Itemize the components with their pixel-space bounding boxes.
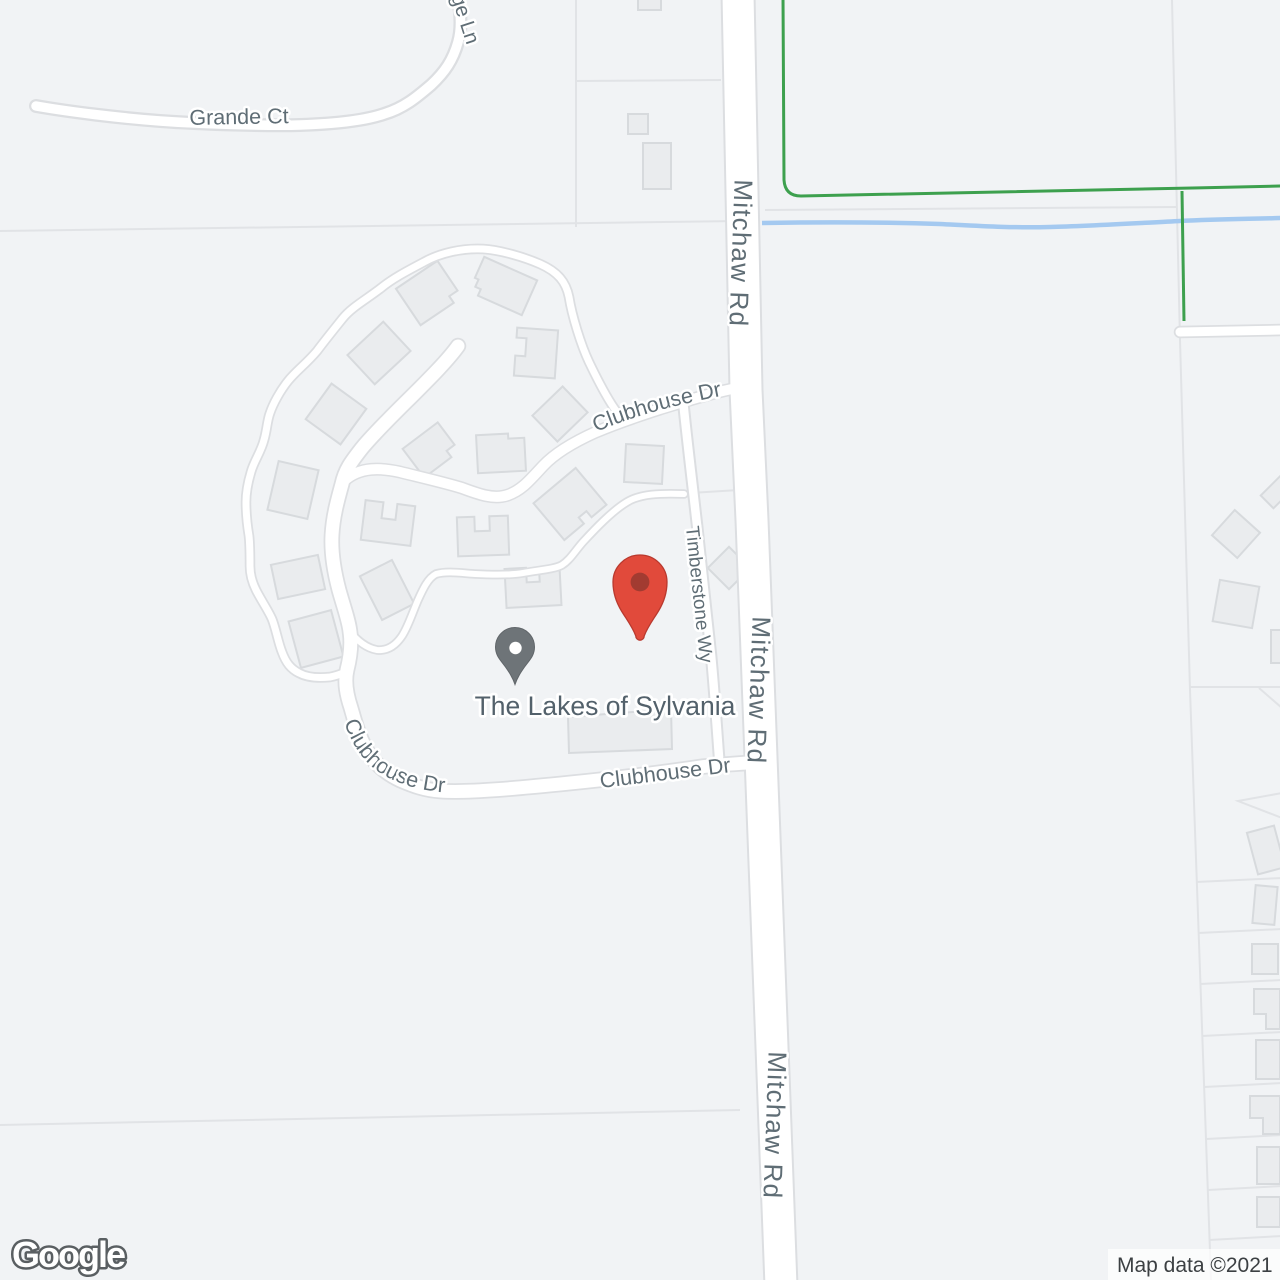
svg-text:Map data ©2021: Map data ©2021: [1117, 1254, 1273, 1277]
svg-text:The Lakes of Sylvania: The Lakes of Sylvania: [475, 691, 736, 721]
svg-text:Mitchaw Rd: Mitchaw Rd: [741, 616, 776, 765]
svg-text:Mitchaw Rd: Mitchaw Rd: [757, 1051, 792, 1200]
svg-text:Grande Ct: Grande Ct: [189, 104, 289, 130]
svg-text:Mitchaw Rd: Mitchaw Rd: [723, 179, 758, 328]
svg-text:Google: Google: [12, 1234, 125, 1275]
